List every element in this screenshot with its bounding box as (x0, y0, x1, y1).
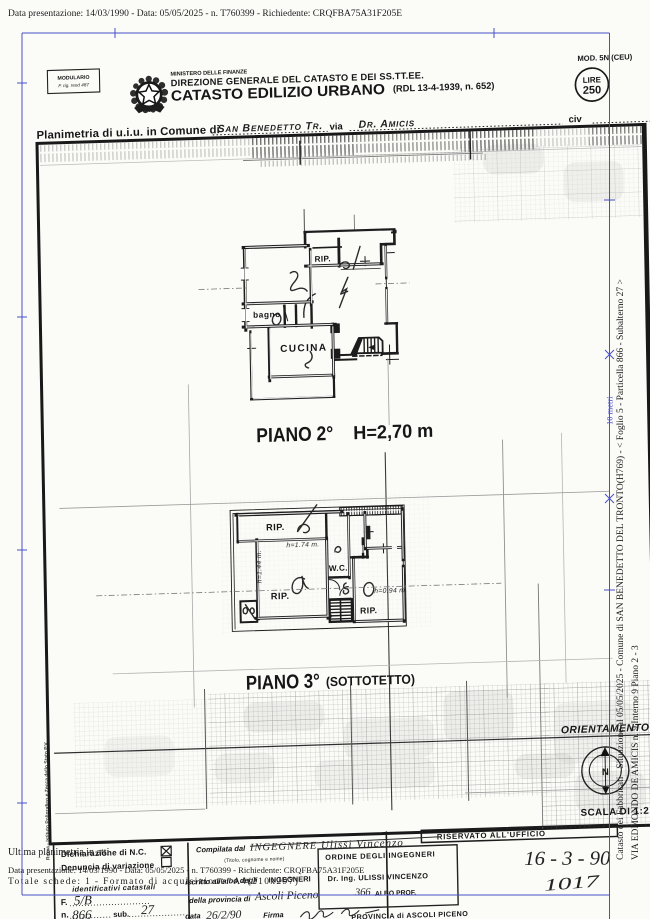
svg-text:10 metri: 10 metri (605, 396, 615, 425)
